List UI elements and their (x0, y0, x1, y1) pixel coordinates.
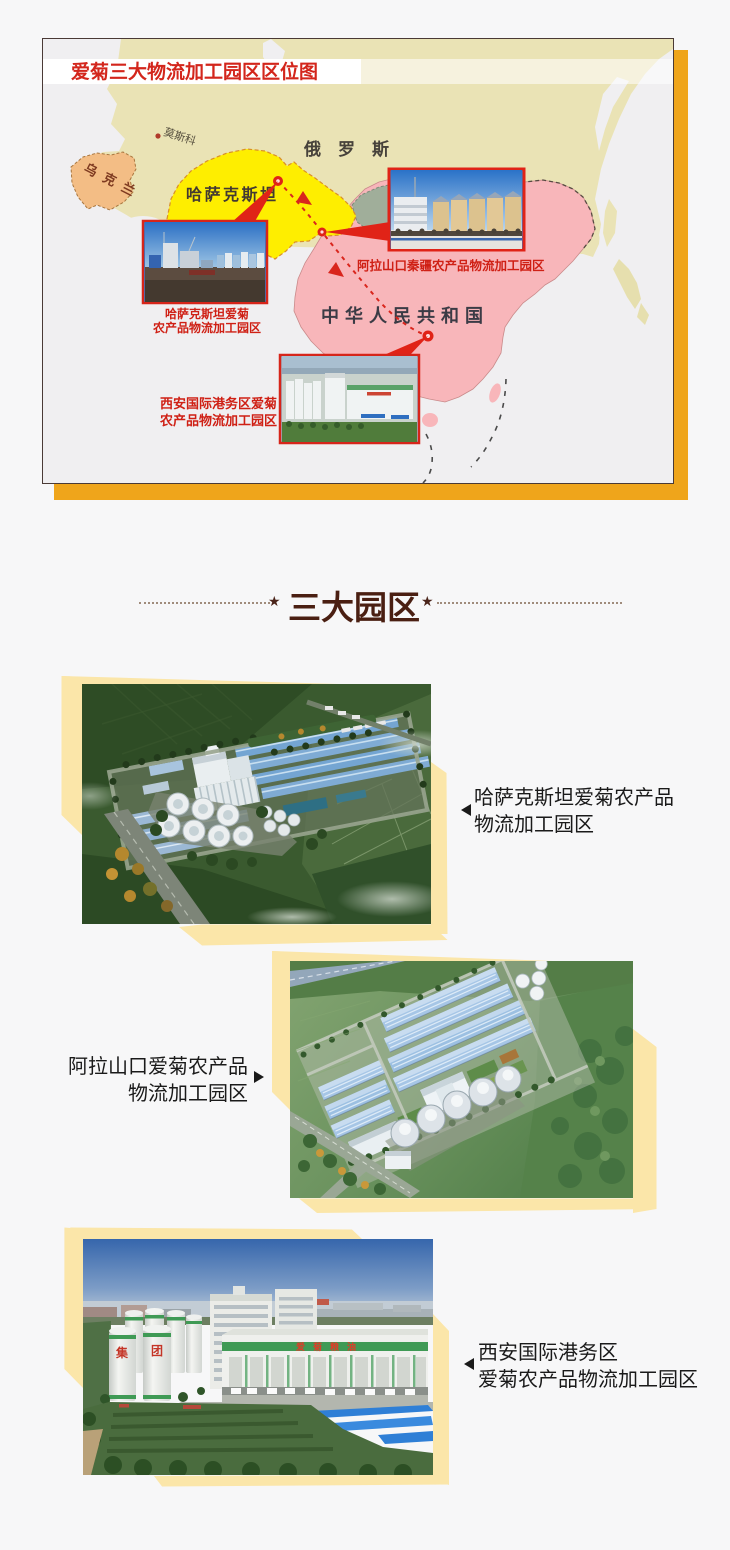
svg-text:俄罗斯: 俄罗斯 (303, 139, 406, 159)
svg-text:爱菊三大物流加工园区区位图: 爱菊三大物流加工园区区位图 (71, 60, 318, 83)
svg-text:农产品物流加工园区: 农产品物流加工园区 (159, 413, 277, 428)
svg-text:爱菊粮油: 爱菊粮油 (296, 1341, 364, 1352)
svg-text:西安国际港务区爱菊: 西安国际港务区爱菊 (160, 396, 277, 411)
svg-text:哈萨克斯坦爱菊: 哈萨克斯坦爱菊 (165, 306, 249, 321)
svg-text:团: 团 (151, 1344, 163, 1358)
svg-text:集: 集 (115, 1345, 129, 1360)
svg-text:阿拉山口秦疆农产品物流加工园区: 阿拉山口秦疆农产品物流加工园区 (357, 258, 545, 273)
svg-text:农产品物流加工园区: 农产品物流加工园区 (152, 320, 261, 335)
